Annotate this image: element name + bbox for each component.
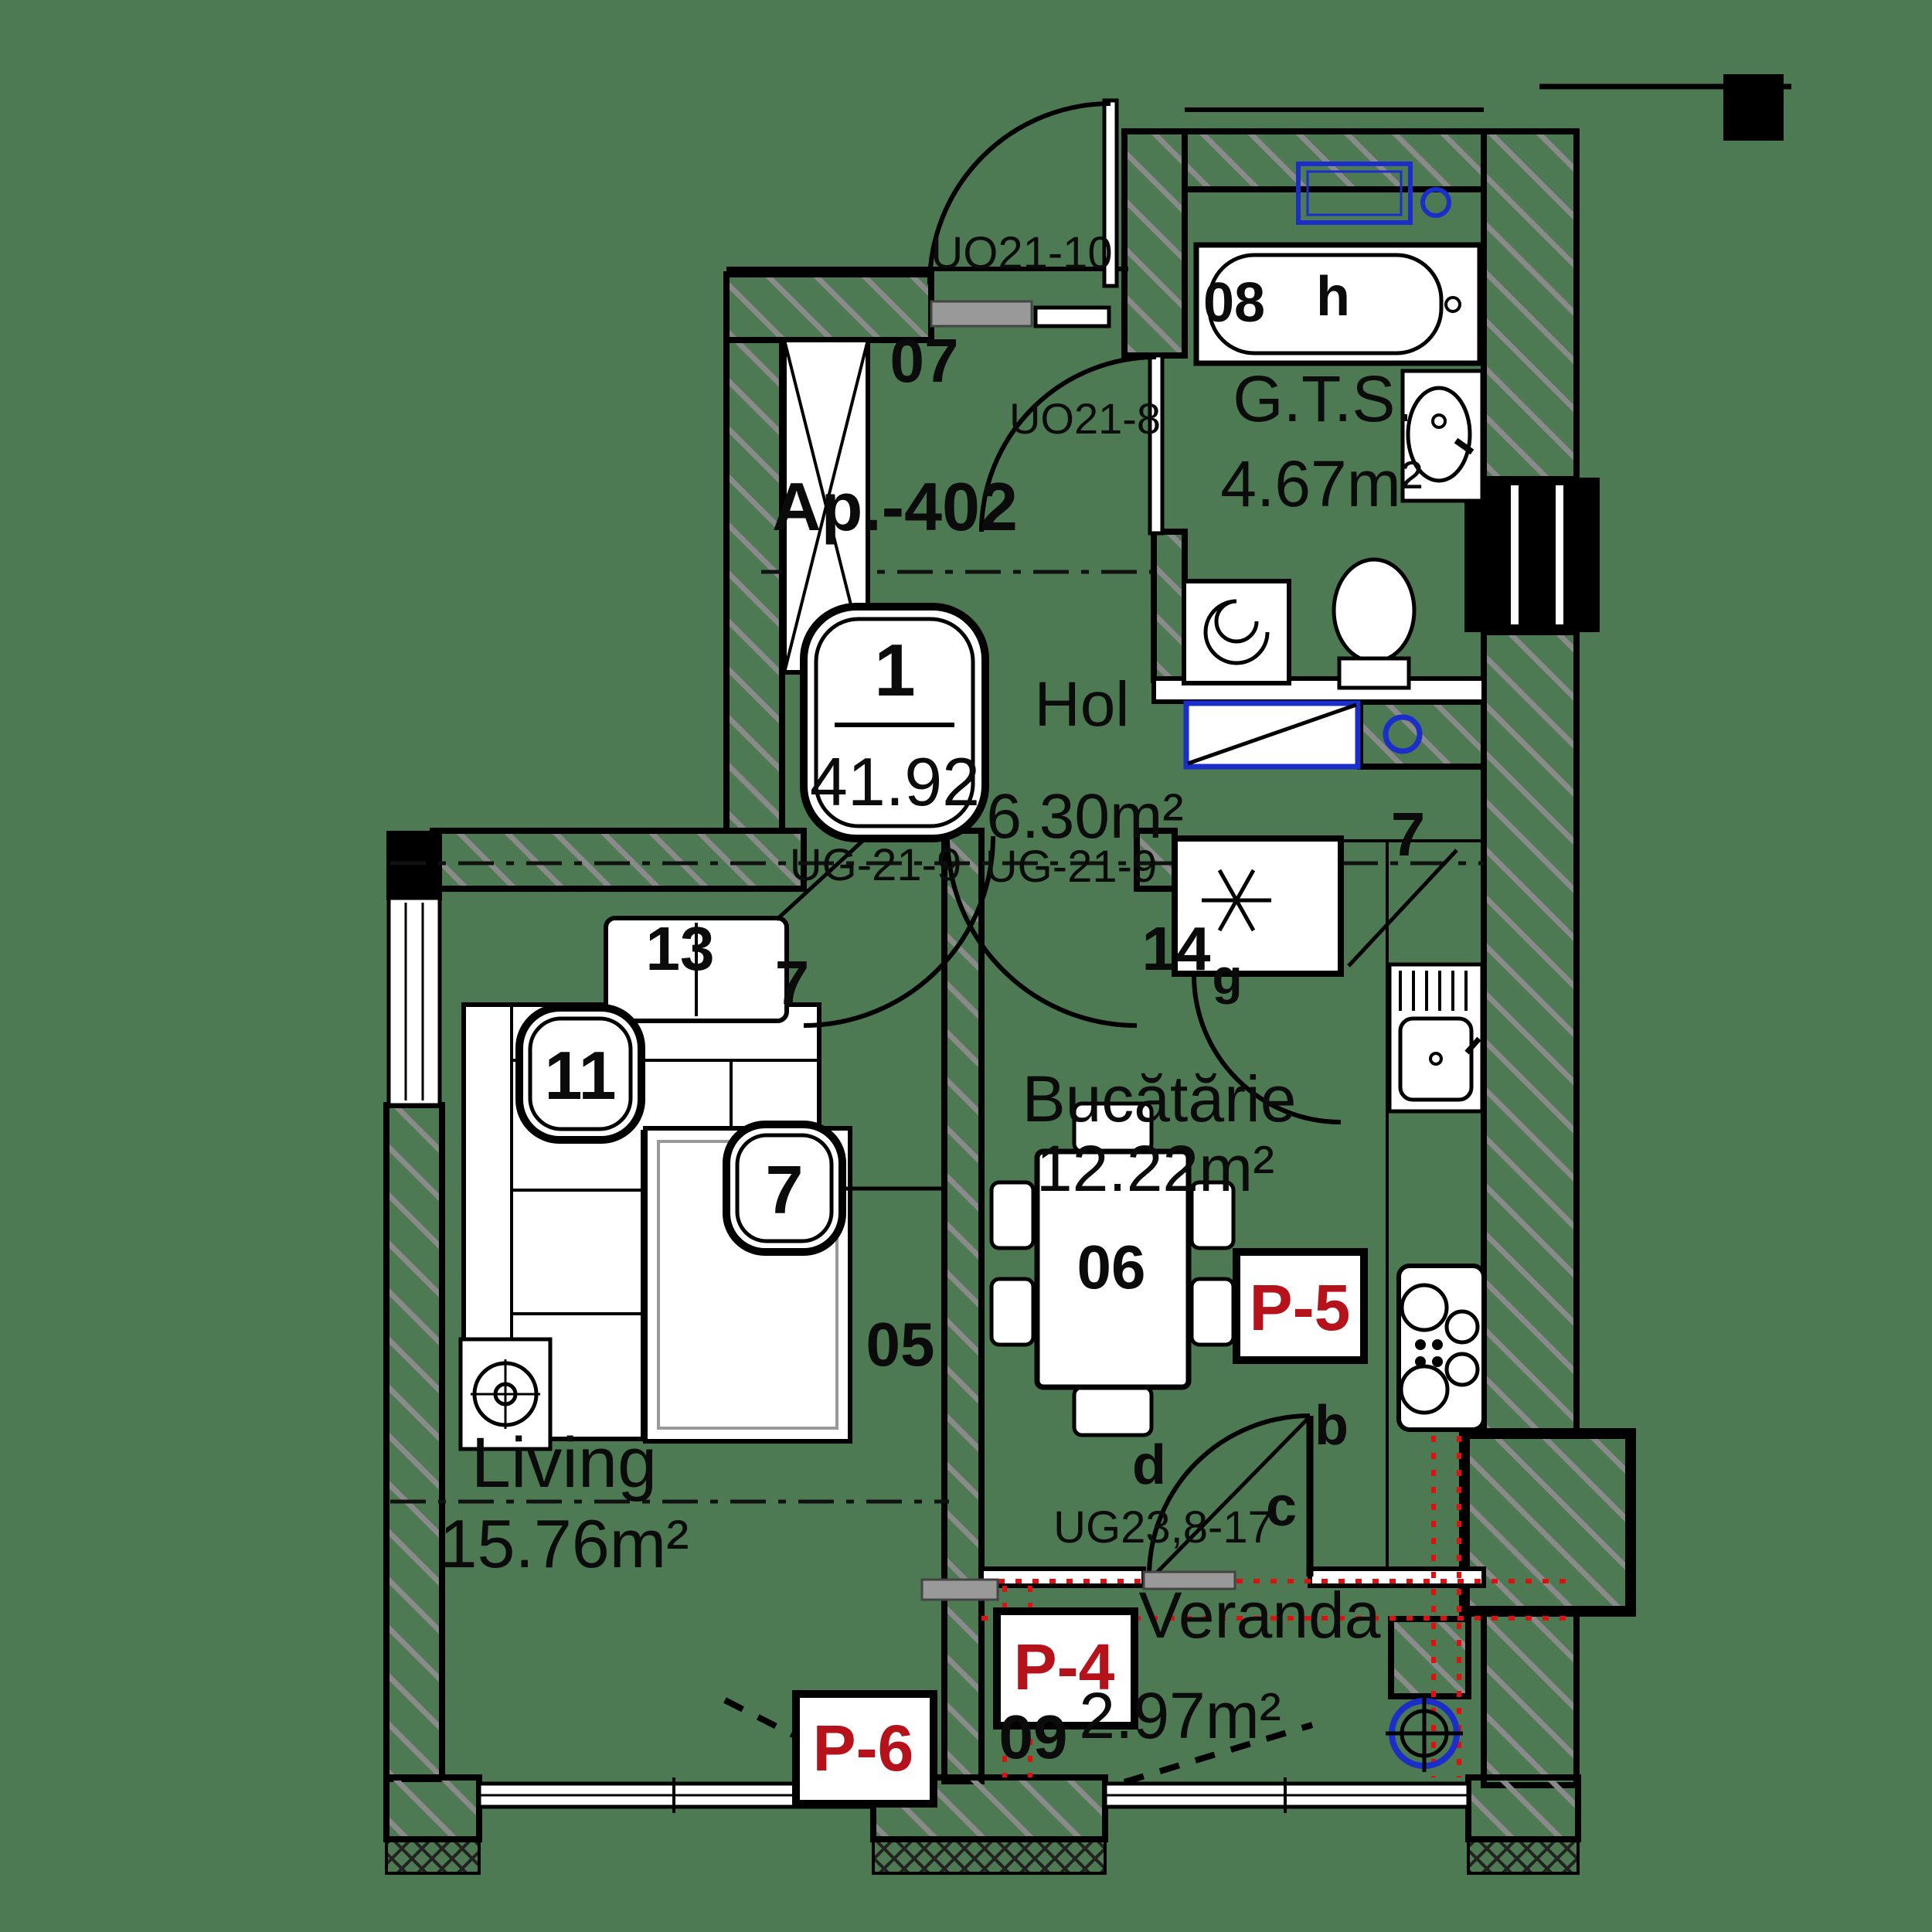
door-arc-niche	[1194, 975, 1341, 1122]
floor-drain-icon	[1386, 1695, 1463, 1772]
wall-gts-top	[1185, 131, 1484, 189]
armchair-icon	[606, 918, 787, 1021]
chair-icon	[992, 1279, 1033, 1345]
door-leaf-gts	[1150, 355, 1162, 533]
plant-table-icon	[461, 1339, 550, 1449]
washing-machine-icon	[1184, 581, 1289, 683]
door-arc-gts	[981, 357, 1156, 532]
insulation-right	[1468, 1841, 1578, 1873]
badge-7-box	[726, 1124, 842, 1252]
door-arc-entrance	[930, 104, 1111, 284]
window-left-wall	[389, 898, 440, 1105]
chair-icon	[992, 1182, 1033, 1248]
wall-bottom-pier-right	[1468, 1777, 1578, 1839]
wall-kitchen-top-chunk	[1137, 831, 1175, 889]
wall-bottom-pier-left	[386, 1777, 479, 1839]
wall-left-top-corner	[386, 831, 442, 900]
chair-icon	[1192, 1279, 1233, 1345]
marker-p4-box	[997, 1611, 1134, 1726]
wall-gts-left-lower	[1154, 532, 1185, 680]
wall-entry-gts-niche	[1124, 131, 1185, 355]
floorplan-drawing	[0, 0, 1932, 1932]
kitchen-niche	[1175, 838, 1457, 974]
cooktop-icon	[1399, 1266, 1484, 1430]
insulation-left	[386, 1841, 479, 1873]
unit-badge	[804, 607, 985, 838]
dining-table-icon	[1037, 1151, 1189, 1387]
wall-right-lower	[1484, 1611, 1577, 1785]
dining-set-icon	[992, 1104, 1233, 1435]
wall-living-top	[433, 831, 804, 889]
badge-11-box	[519, 1008, 641, 1140]
chair-icon	[1074, 1387, 1151, 1435]
insulation-mid	[873, 1841, 1105, 1873]
chair-icon	[1192, 1182, 1233, 1248]
window-opening-dash-veranda	[1124, 1725, 1312, 1782]
wall-entrance-top	[726, 274, 931, 340]
shaft-pillar-bottom	[1464, 1434, 1631, 1611]
wall-living-kitchen-divider	[944, 831, 981, 1781]
chair-icon	[1074, 1104, 1151, 1151]
bath-sink-icon	[1403, 371, 1482, 501]
wall-entrance-left	[726, 340, 782, 831]
door-leaf-veranda-open	[1151, 1419, 1308, 1578]
wall-left-lower	[386, 1105, 442, 1779]
door-leaf-entrance	[1104, 100, 1117, 286]
wall-right-upper	[1484, 131, 1577, 479]
toilet-icon	[1334, 560, 1414, 688]
marker-p5-box	[1236, 1252, 1364, 1360]
insulation-bands	[386, 1841, 1578, 1873]
bathtub-icon	[1196, 245, 1480, 363]
thin-partitions	[981, 679, 1484, 1586]
kitchen-sink-icon	[1389, 964, 1482, 1111]
wall-right-mid	[1484, 632, 1577, 1434]
shaft-pillar-top	[1464, 478, 1600, 632]
marker-p6-box	[796, 1694, 934, 1804]
